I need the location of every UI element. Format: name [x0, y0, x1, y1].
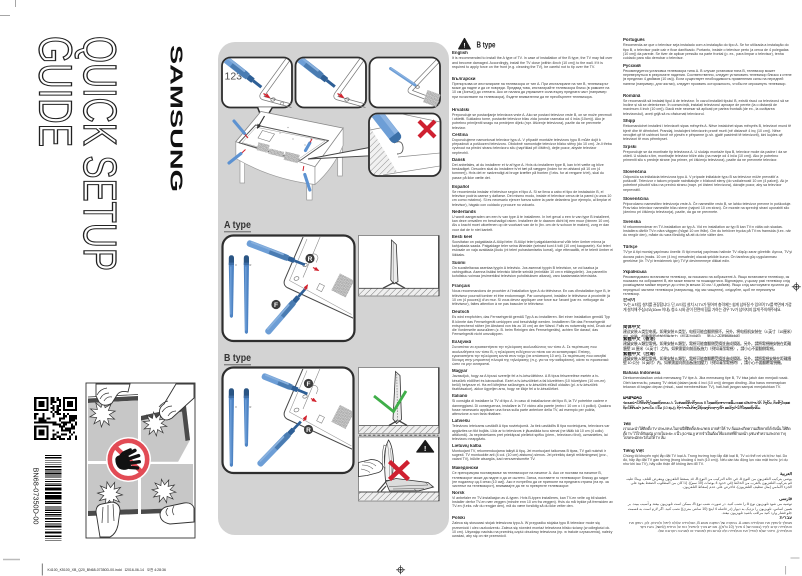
- svg-text:K4100_K5100_XB_Q20_BN68-07350D: K4100_K5100_XB_Q20_BN68-07350D-00.indd 1: [48, 568, 127, 572]
- svg-text:R: R: [308, 256, 313, 263]
- svg-text:R: R: [306, 427, 311, 434]
- svg-text:!: !: [463, 43, 465, 50]
- svg-text:F: F: [274, 302, 278, 309]
- svg-text:GUIDE: GUIDE: [30, 36, 82, 147]
- svg-text:R: R: [250, 263, 252, 267]
- svg-text:B type: B type: [477, 39, 496, 49]
- svg-text:A type: A type: [224, 220, 251, 231]
- svg-text:BN68-07350D-00: BN68-07350D-00: [32, 468, 41, 525]
- svg-text:B type: B type: [224, 353, 251, 364]
- svg-text:F: F: [306, 381, 310, 388]
- svg-text:R: R: [250, 405, 252, 409]
- svg-text:SAMSUNG: SAMSUNG: [167, 45, 187, 192]
- svg-text:2016-06-14 오전 4:28:36: 2016-06-14 오전 4:28:36: [126, 567, 166, 572]
- svg-text:!: !: [424, 444, 427, 453]
